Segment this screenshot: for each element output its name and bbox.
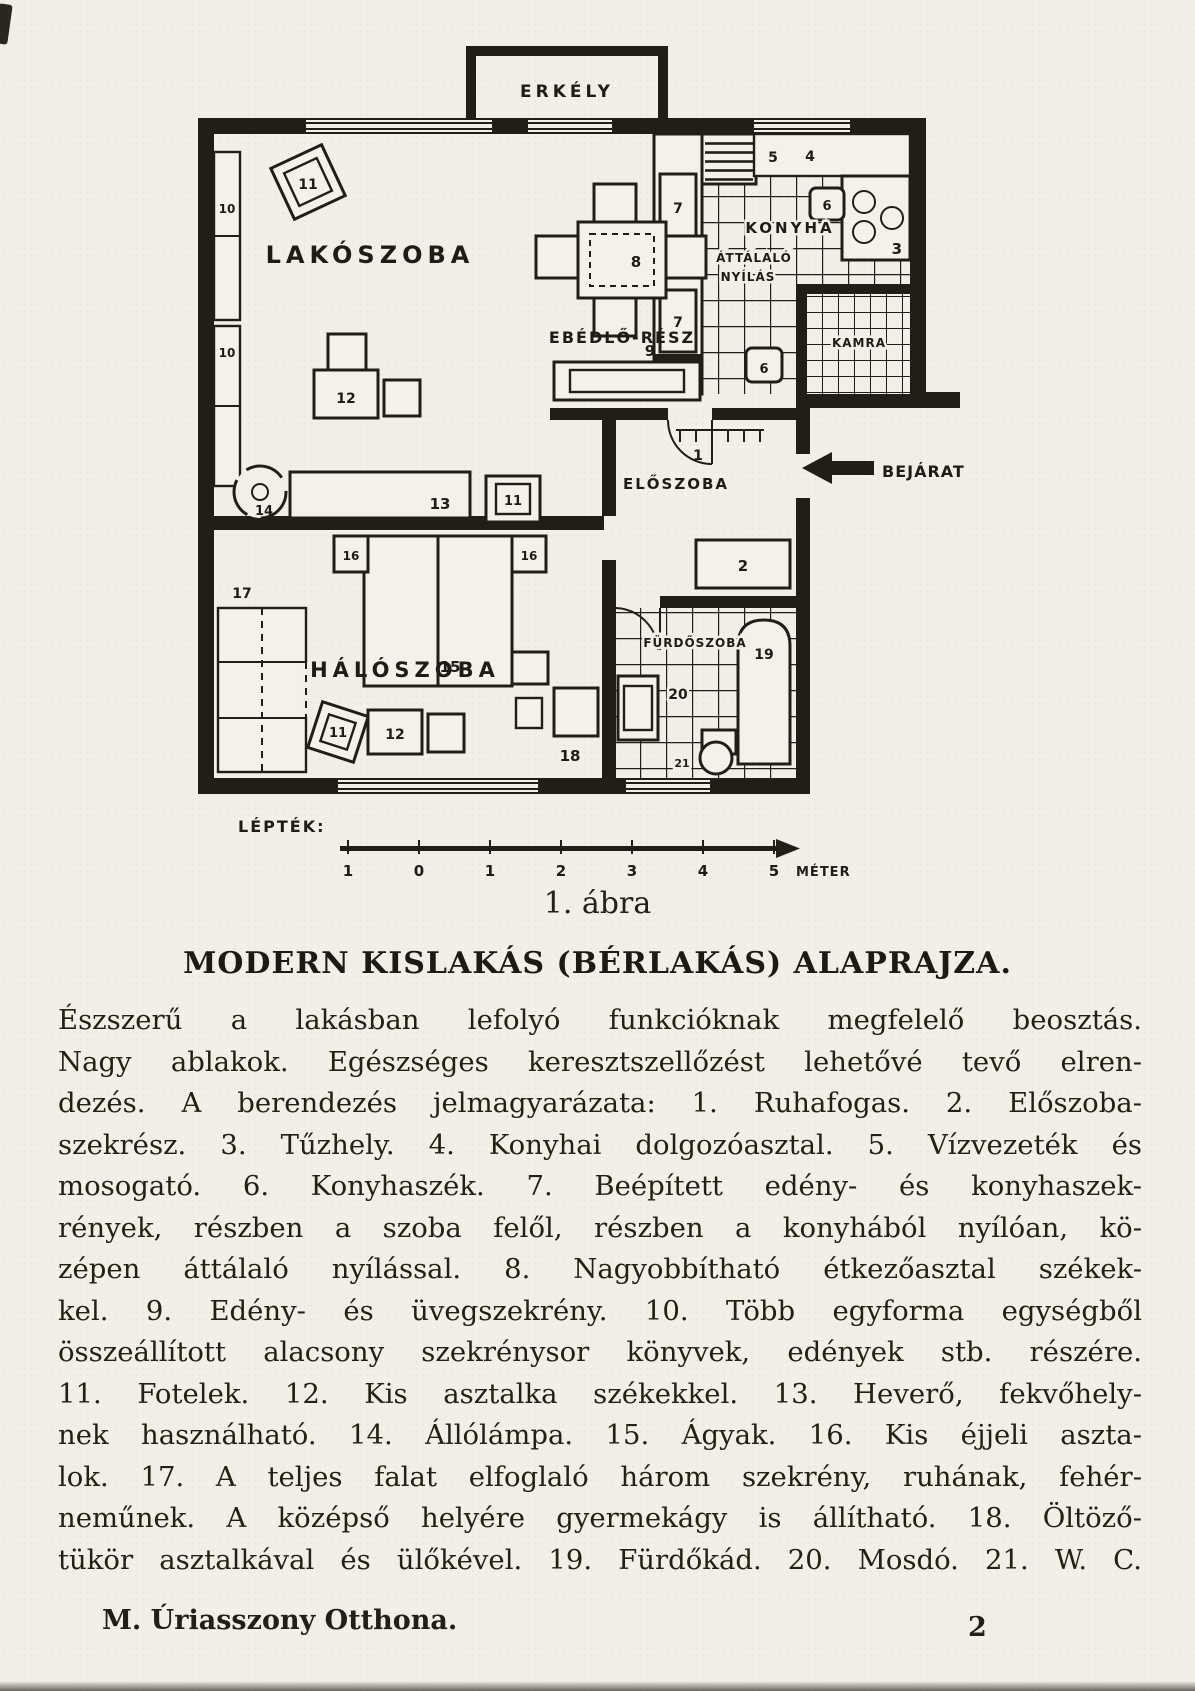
chair <box>428 714 464 752</box>
room-label-hall: ELŐSZOBA <box>623 473 729 493</box>
entrance-arrow-icon <box>802 452 874 484</box>
scale-num: 2 <box>556 862 566 880</box>
hatch-label-line2: NYÍLÁS <box>721 269 776 284</box>
item-12-table: 12 <box>385 727 404 743</box>
room-label-living: LAKÓSZOBA <box>266 239 475 269</box>
room-label-pantry: KAMRA <box>832 336 886 350</box>
scan-artifact <box>0 3 13 45</box>
item-12-table: 12 <box>336 391 355 407</box>
hall <box>676 430 874 588</box>
hatch-label-line1: ÁTTÁLALÓ <box>716 250 792 265</box>
small-table-group <box>314 334 420 418</box>
figure-caption: 1. ábra <box>0 886 1195 921</box>
china-cabinet <box>554 362 700 400</box>
scan-edge-shadow <box>0 1681 1195 1691</box>
item-18-mirror: 18 <box>560 747 581 765</box>
door-swing <box>668 420 712 464</box>
sink-hatch <box>705 137 753 181</box>
dining-chair <box>536 236 578 278</box>
wardrobe-wall-unit <box>218 608 308 772</box>
item-10-cabinet: 10 <box>219 202 236 216</box>
stool <box>512 652 548 684</box>
item-6-chair: 6 <box>759 362 768 377</box>
entrance-label: BEJÁRAT <box>882 462 965 481</box>
item-3-stove: 3 <box>892 240 902 258</box>
living-room <box>214 145 540 522</box>
dressing-mirror-set <box>516 688 598 736</box>
item-5-sink: 5 <box>768 150 778 166</box>
wc <box>700 730 736 774</box>
item-19-bathtub: 19 <box>754 647 773 663</box>
item-1-coatrack: 1 <box>693 448 703 464</box>
page-number: 2 <box>968 1612 987 1643</box>
item-16-nighttable: 16 <box>521 549 538 563</box>
item-9-cabinet: 9 <box>645 342 655 360</box>
item-7-cupboard: 7 <box>673 201 683 217</box>
item-17-wardrobe: 17 <box>232 586 251 602</box>
coat-rack <box>676 430 764 442</box>
item-15-beds: 15 <box>440 658 461 676</box>
scale-num: 1 <box>485 862 495 880</box>
floor-plan-figure: ERKÉLYLAKÓSZOBAEBÉDLŐ-RÉSZKONYHAÁTTÁLALÓ… <box>198 40 968 885</box>
bathroom <box>616 608 796 778</box>
item-7-cupboard: 7 <box>673 315 683 331</box>
item-11-armchair: 11 <box>329 726 347 741</box>
bedroom <box>218 536 598 772</box>
washbasin <box>618 676 658 740</box>
item-14-lamp: 14 <box>255 504 273 519</box>
scale-num: 4 <box>698 862 708 880</box>
item-20-washbasin: 20 <box>668 687 688 703</box>
item-11-armchair: 11 <box>504 494 522 509</box>
item-10-cabinet: 10 <box>219 346 236 360</box>
scale-num: 0 <box>414 862 424 880</box>
scale-num: 3 <box>627 862 637 880</box>
scale-num: 1 <box>343 862 353 880</box>
scale-num: 5 <box>769 862 779 880</box>
item-4-worktable: 4 <box>805 149 815 165</box>
scale-bar <box>340 839 800 858</box>
scale-unit: MÉTER <box>796 864 851 880</box>
item-16-nighttable: 16 <box>343 549 360 563</box>
room-label-balcony: ERKÉLY <box>520 80 614 102</box>
dining-chair <box>594 184 636 224</box>
item-2-hall-closet: 2 <box>738 557 748 575</box>
item-21-wc: 21 <box>674 757 689 770</box>
item-11-armchair: 11 <box>298 177 317 193</box>
article-title: MODERN KISLAKÁS (BÉRLAKÁS) ALAPRAJZA. <box>0 946 1195 981</box>
item-6-chair: 6 <box>822 199 831 214</box>
scanned-page: ERKÉLYLAKÓSZOBAEBÉDLŐ-RÉSZKONYHAÁTTÁLALÓ… <box>0 0 1195 1691</box>
room-label-bedroom: HÁLÓSZOBA <box>310 657 500 682</box>
room-label-kitchen: KONYHA <box>745 219 834 237</box>
body-paragraph: Észszerű a lakásban lefolyó funkcióknak … <box>58 1000 1142 1581</box>
footer-publication: M. Úriasszony Otthona. <box>102 1605 457 1636</box>
item-13-divan: 13 <box>430 495 451 513</box>
room-label-bathroom: FÜRDŐSZOBA <box>643 635 746 650</box>
item-8-dining-table: 8 <box>631 253 641 271</box>
dining-chair <box>664 236 706 278</box>
scale-arrowhead-icon <box>776 839 800 858</box>
scale-label: LÉPTÉK: <box>238 817 326 836</box>
